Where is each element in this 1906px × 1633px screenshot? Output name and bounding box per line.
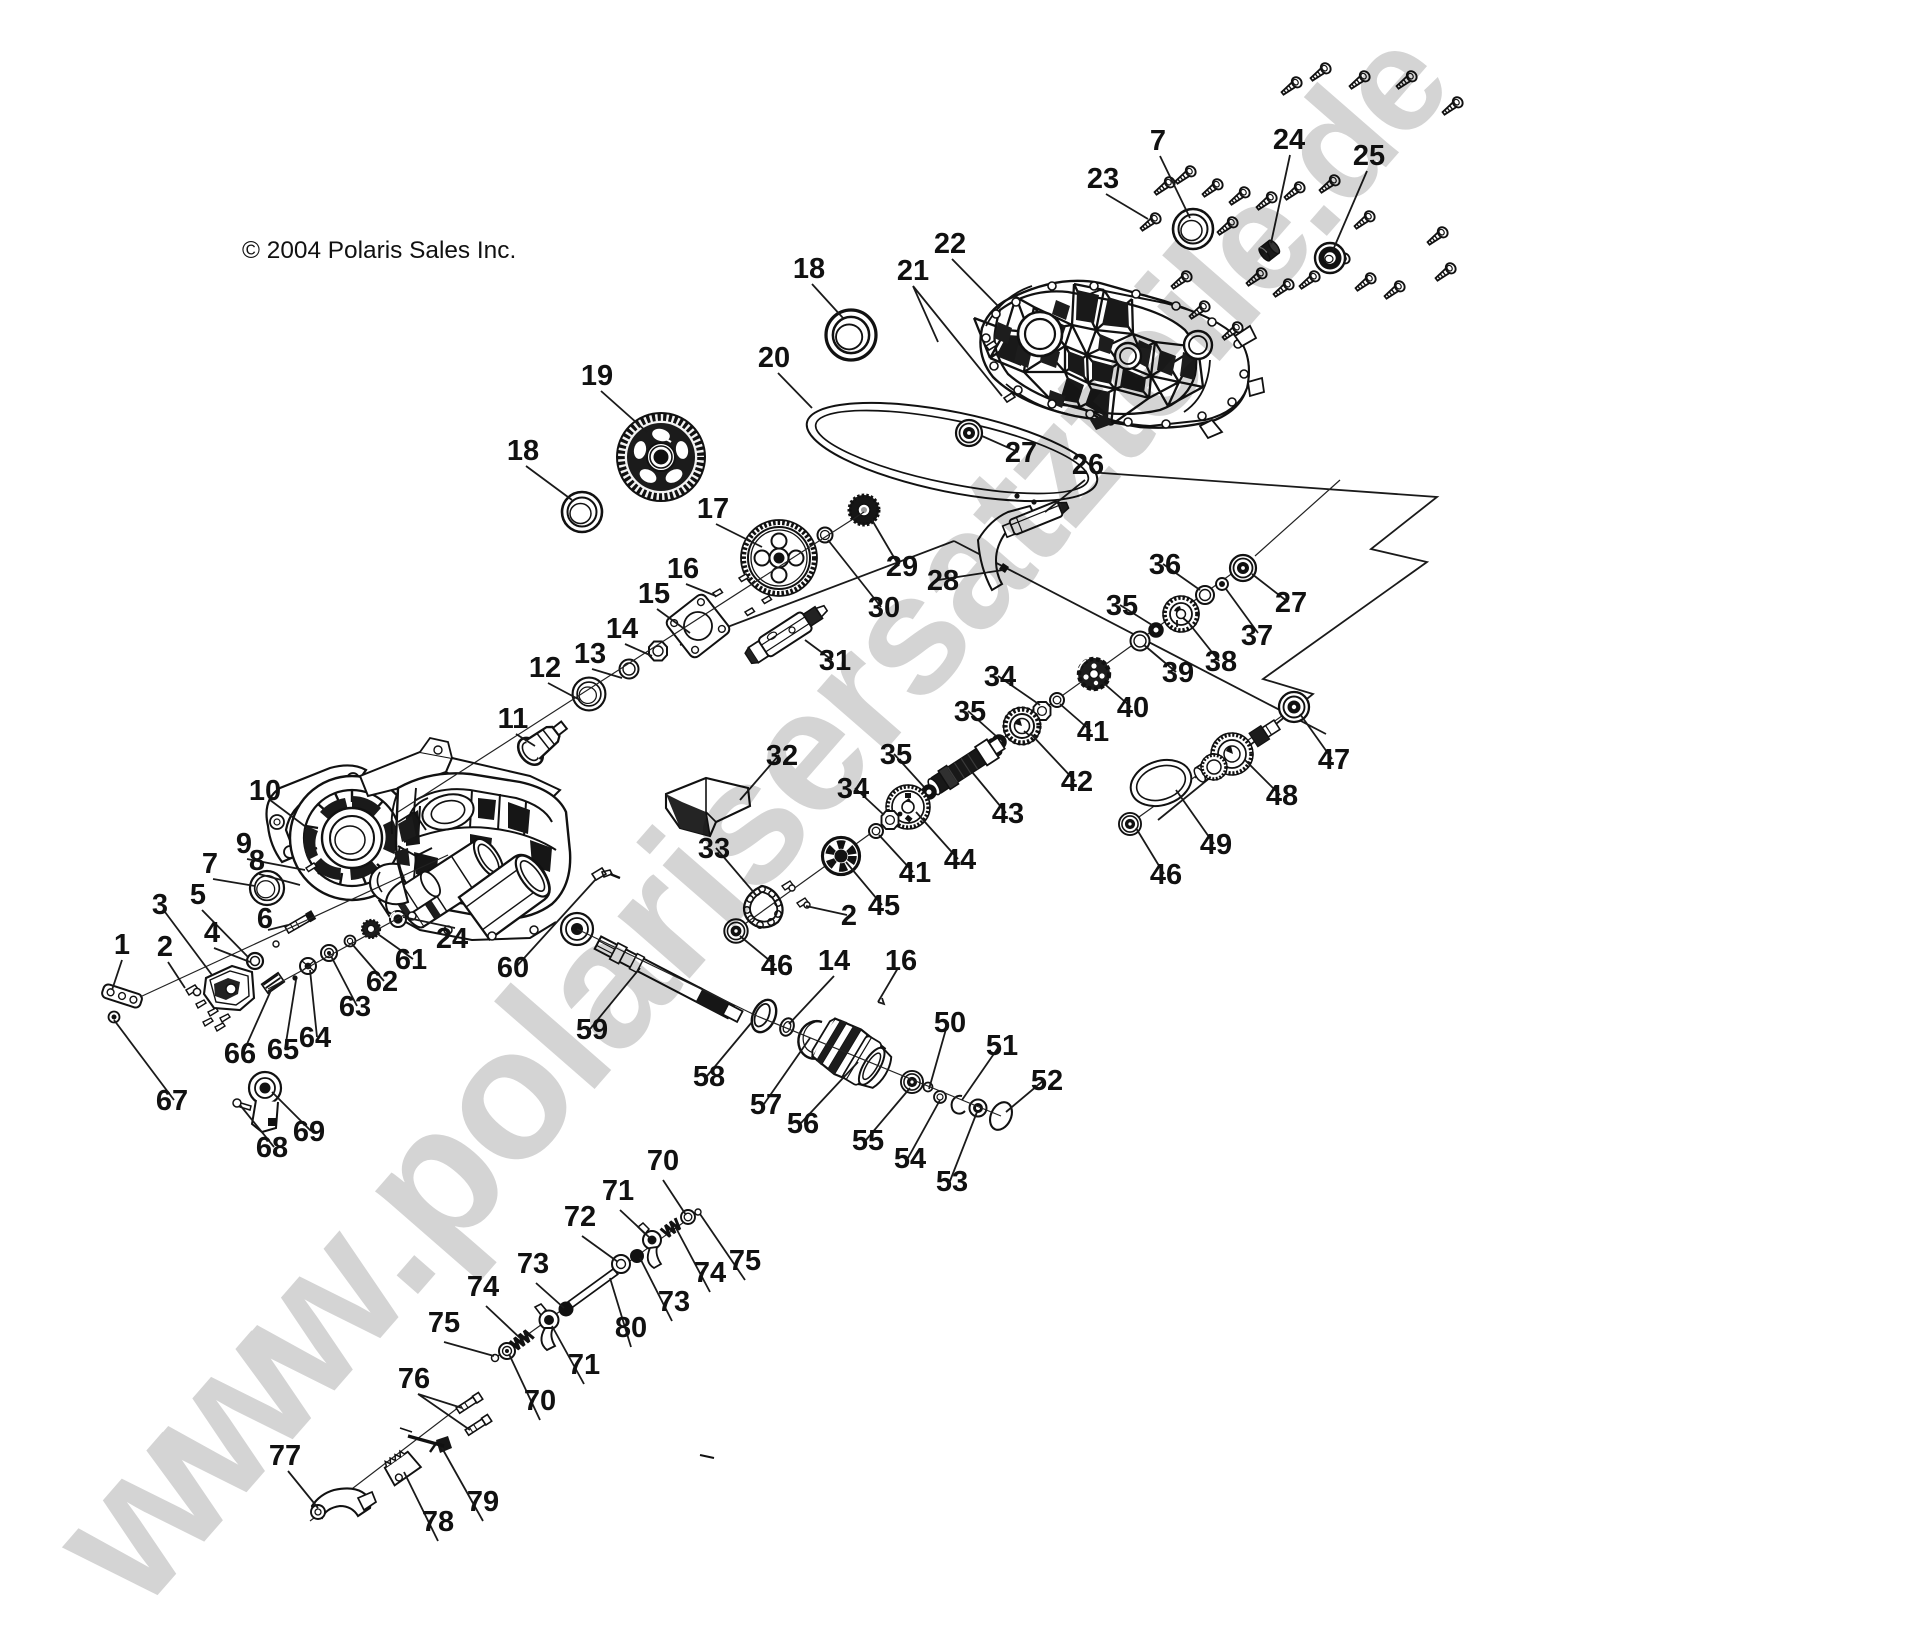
svg-text:65: 65 — [267, 1034, 299, 1066]
svg-text:72: 72 — [564, 1201, 596, 1233]
svg-text:45: 45 — [868, 890, 900, 922]
svg-text:63: 63 — [339, 991, 371, 1023]
svg-text:24: 24 — [436, 923, 468, 955]
svg-text:46: 46 — [761, 950, 793, 982]
svg-text:14: 14 — [818, 945, 850, 977]
svg-text:39: 39 — [1162, 657, 1194, 689]
svg-text:16: 16 — [885, 945, 917, 977]
svg-text:68: 68 — [256, 1132, 288, 1164]
svg-text:38: 38 — [1205, 646, 1237, 678]
svg-text:57: 57 — [750, 1089, 782, 1121]
svg-text:50: 50 — [934, 1007, 966, 1039]
svg-text:12: 12 — [529, 652, 561, 684]
svg-text:5: 5 — [190, 879, 206, 911]
svg-text:14: 14 — [606, 613, 638, 645]
svg-text:4: 4 — [204, 917, 220, 949]
svg-text:27: 27 — [1275, 587, 1307, 619]
svg-text:19: 19 — [581, 360, 613, 392]
svg-text:53: 53 — [936, 1166, 968, 1198]
svg-text:18: 18 — [507, 435, 539, 467]
svg-text:80: 80 — [615, 1312, 647, 1344]
svg-text:73: 73 — [658, 1286, 690, 1318]
svg-text:37: 37 — [1241, 620, 1273, 652]
svg-text:7: 7 — [1150, 125, 1166, 157]
svg-text:22: 22 — [934, 228, 966, 260]
svg-text:9: 9 — [236, 828, 252, 860]
svg-text:69: 69 — [293, 1116, 325, 1148]
svg-text:41: 41 — [899, 857, 931, 889]
svg-text:2: 2 — [841, 900, 857, 932]
svg-text:2: 2 — [157, 931, 173, 963]
svg-text:42: 42 — [1061, 766, 1093, 798]
svg-text:51: 51 — [986, 1030, 1018, 1062]
svg-text:67: 67 — [156, 1085, 188, 1117]
svg-text:3: 3 — [152, 889, 168, 921]
svg-text:© 2004 Polaris Sales Inc.: © 2004 Polaris Sales Inc. — [242, 237, 516, 264]
svg-text:58: 58 — [693, 1061, 725, 1093]
svg-text:54: 54 — [894, 1143, 926, 1175]
svg-text:44: 44 — [944, 844, 976, 876]
svg-text:17: 17 — [697, 493, 729, 525]
svg-text:61: 61 — [395, 944, 427, 976]
svg-text:48: 48 — [1266, 780, 1298, 812]
svg-text:11: 11 — [498, 703, 529, 735]
svg-text:18: 18 — [793, 253, 825, 285]
svg-text:6: 6 — [257, 903, 273, 935]
svg-text:21: 21 — [897, 255, 929, 287]
svg-text:20: 20 — [758, 342, 790, 374]
svg-text:43: 43 — [992, 798, 1024, 830]
svg-text:56: 56 — [787, 1108, 819, 1140]
svg-text:16: 16 — [667, 553, 699, 585]
svg-text:49: 49 — [1200, 829, 1232, 861]
svg-text:15: 15 — [638, 578, 670, 610]
svg-text:64: 64 — [299, 1022, 331, 1054]
svg-text:74: 74 — [694, 1257, 726, 1289]
svg-text:78: 78 — [422, 1506, 454, 1538]
svg-text:70: 70 — [647, 1145, 679, 1177]
svg-text:40: 40 — [1117, 692, 1149, 724]
svg-text:13: 13 — [574, 638, 606, 670]
svg-text:75: 75 — [729, 1245, 761, 1277]
svg-text:71: 71 — [568, 1349, 600, 1381]
svg-text:79: 79 — [467, 1486, 499, 1518]
svg-text:66: 66 — [224, 1038, 256, 1070]
svg-text:41: 41 — [1077, 716, 1109, 748]
svg-text:36: 36 — [1149, 549, 1181, 581]
svg-text:46: 46 — [1150, 859, 1182, 891]
svg-text:71: 71 — [602, 1175, 634, 1207]
svg-text:55: 55 — [852, 1125, 884, 1157]
svg-text:35: 35 — [1106, 590, 1138, 622]
svg-text:1: 1 — [114, 929, 130, 961]
svg-text:70: 70 — [524, 1385, 556, 1417]
svg-text:23: 23 — [1087, 163, 1119, 195]
svg-text:47: 47 — [1318, 744, 1350, 776]
svg-text:10: 10 — [249, 775, 281, 807]
svg-text:52: 52 — [1031, 1065, 1063, 1097]
svg-text:7: 7 — [202, 848, 218, 880]
svg-text:73: 73 — [517, 1248, 549, 1280]
